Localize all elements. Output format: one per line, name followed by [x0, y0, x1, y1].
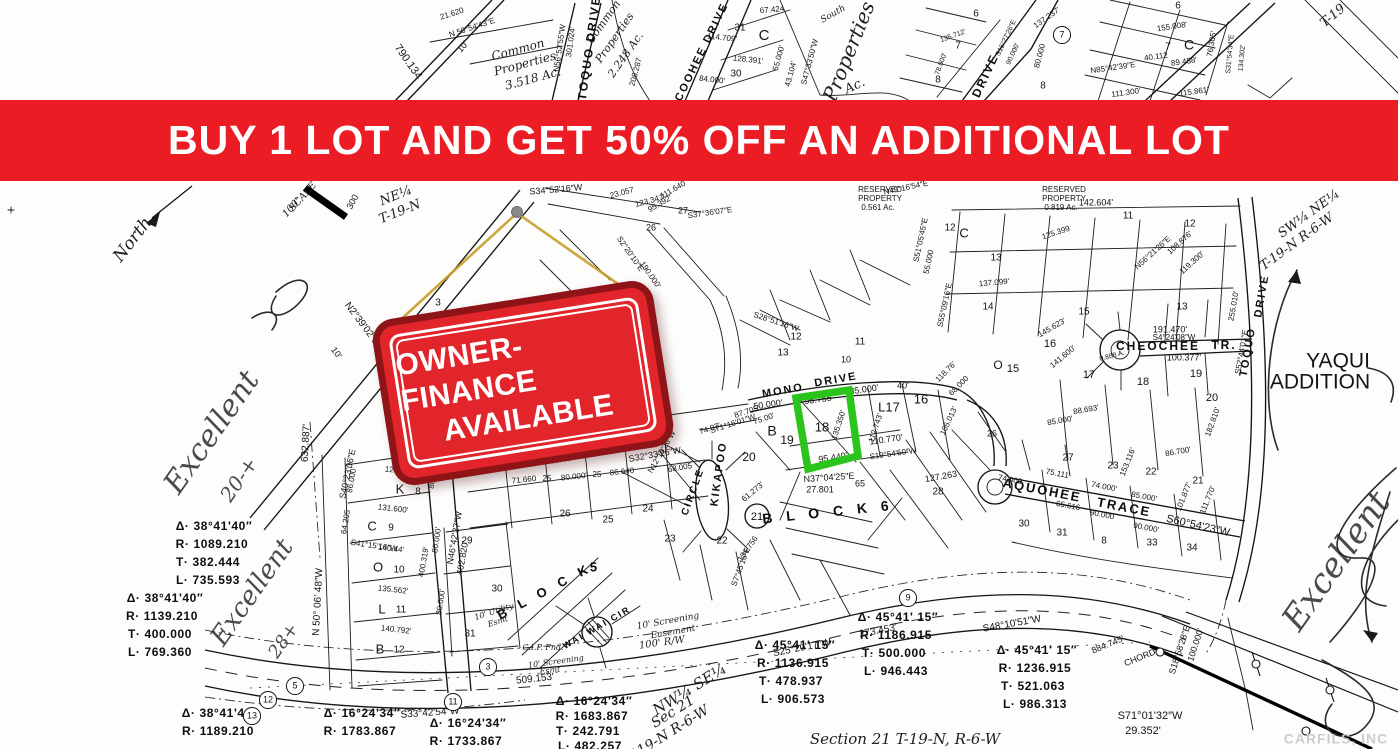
- map-label: 21.620: [439, 5, 466, 21]
- map-label: 5: [292, 680, 297, 690]
- map-label: O: [993, 358, 1002, 372]
- map-label: R· 1236.915: [999, 661, 1072, 675]
- map-label: 90.000': [1132, 521, 1160, 535]
- map-label: Δ· 45°41' 15″: [858, 610, 939, 624]
- map-label: N85°42'39″E: [1090, 60, 1136, 75]
- map-label: B L O C K 6: [762, 497, 895, 527]
- map-label: Δ· 16°24'34″: [430, 716, 507, 730]
- map-label: S48°10'51″W: [982, 614, 1042, 635]
- map-label: S47°33'50″W: [799, 38, 820, 86]
- map-label: 884.745': [1090, 633, 1126, 655]
- map-label: 20: [1206, 392, 1218, 404]
- map-label: 6: [973, 9, 979, 20]
- map-label: K: [396, 481, 405, 496]
- map-label: S34°52'16″W: [529, 182, 583, 197]
- map-label: 100' R/W: [638, 634, 686, 651]
- map-label: Δ· 16°24'34″: [556, 694, 633, 708]
- map-label: 208.287: [628, 56, 644, 87]
- map-label: 43.104': [783, 60, 799, 88]
- map-label: 64.205: [339, 509, 352, 535]
- map-label: L· 906.573: [761, 692, 825, 706]
- map-label: WAI WAI CIR: [561, 604, 632, 651]
- map-label: L: [378, 601, 385, 616]
- map-label: 18: [1137, 376, 1149, 388]
- map-label: 26: [987, 428, 997, 438]
- map-label: T· 478.937: [759, 674, 823, 688]
- map-label: 68.005: [667, 461, 693, 474]
- map-label: TR.: [1211, 338, 1236, 352]
- map-label: 27: [1062, 453, 1074, 464]
- map-label: C: [759, 27, 770, 44]
- pin-dot: [512, 207, 523, 218]
- map-label: 23: [1107, 461, 1119, 472]
- map-label: 127.263: [924, 469, 958, 484]
- map-label: 23.057: [609, 185, 635, 200]
- map-label: 30: [730, 69, 742, 80]
- map-label: 33: [1146, 538, 1158, 549]
- map-label: 11: [448, 696, 457, 706]
- map-label: 25: [593, 470, 602, 479]
- map-label: 5: [590, 559, 602, 574]
- map-label: R· 1136.915: [757, 656, 829, 670]
- map-label: 111.770': [1198, 484, 1217, 515]
- map-label: 11: [855, 337, 866, 348]
- map-label: 13: [1176, 302, 1188, 313]
- map-label: R· 1139.210: [126, 609, 198, 623]
- map-label: 40.112: [1143, 50, 1168, 62]
- map-label: CHORD: [1123, 646, 1158, 668]
- map-label: 28+: [264, 619, 304, 663]
- map-label: S7°45'16″E: [729, 546, 751, 587]
- map-label: T· 521.063: [1001, 679, 1065, 693]
- map-label: 134.302': [1238, 44, 1247, 71]
- map-label: 400.319': [417, 546, 431, 578]
- map-label: 182.810': [1203, 406, 1222, 438]
- map-label: 26: [646, 222, 656, 232]
- map-label: 22: [1145, 467, 1157, 478]
- map-label: 10: [841, 354, 851, 364]
- map-label: COOHEE DRIVE: [673, 1, 731, 104]
- map-label: 115.861': [1179, 85, 1210, 98]
- map-label: 85.000': [1046, 414, 1074, 427]
- map-label: 155.008': [1156, 20, 1188, 33]
- map-label: 0.819 Ac.: [1044, 203, 1077, 212]
- map-label: 3: [435, 298, 441, 309]
- map-label: S71°01'32″W: [1118, 710, 1183, 722]
- map-label: 632.887': [300, 424, 313, 463]
- map-label: L· 482.257: [558, 739, 622, 749]
- map-label: 30: [1018, 519, 1030, 530]
- map-label: 19: [780, 433, 794, 447]
- map-label: B L O C K: [494, 560, 594, 623]
- map-label: 80.000': [561, 471, 588, 483]
- map-label: 55.000: [922, 248, 936, 274]
- map-label: L· 946.443: [864, 664, 928, 678]
- map-label: 89.458': [1170, 55, 1197, 68]
- map-label: S41°15'16″W: [350, 538, 398, 554]
- map-label: R· 1683.867: [556, 709, 629, 723]
- map-label: L· 769.360: [128, 645, 192, 659]
- map-label: N56°21'26″E: [1133, 234, 1173, 271]
- map-label: 11: [396, 605, 407, 616]
- map-label: 137.237': [1032, 5, 1062, 30]
- map-label: 13: [247, 710, 257, 720]
- map-label: 12: [790, 332, 802, 343]
- map-label: South: [819, 3, 847, 25]
- map-label: 61.273': [740, 480, 766, 504]
- owner-finance-sign-face: OWNER-FINANCE AVAILABLE: [378, 286, 669, 480]
- map-label: 0.561 Ac.: [861, 203, 894, 212]
- map-label: CIRCLE: [680, 467, 707, 517]
- map-label: C: [959, 225, 968, 240]
- map-label: 11: [1123, 211, 1134, 222]
- map-label: 111.300': [1111, 86, 1142, 99]
- map-label: 20-+: [214, 452, 262, 507]
- map-label: 31: [1056, 528, 1068, 539]
- map-label: ADDITION: [1270, 371, 1370, 394]
- map-label: R· 1089.210: [176, 537, 249, 551]
- map-label: T-19: [1317, 1, 1348, 30]
- map-label: 10': [455, 39, 470, 55]
- map-label: 31: [734, 23, 746, 34]
- map-label: 29: [461, 536, 473, 547]
- map-label: 101.877': [1174, 481, 1194, 513]
- map-label: RESERVED: [1042, 185, 1086, 194]
- map-label: 16: [1044, 338, 1056, 350]
- map-label: N 50° 06' 48″W: [311, 567, 326, 636]
- map-label: C: [1184, 37, 1194, 53]
- map-label: 34: [1186, 543, 1198, 554]
- listing-image: 790.134N 50°54'43″E21.62010'CommonProper…: [0, 0, 1398, 749]
- map-label: 6: [1175, 1, 1181, 12]
- map-label: Δ· 38°41'40″: [127, 591, 204, 605]
- map-label: DRIVE: [1252, 273, 1271, 318]
- promo-banner: BUY 1 LOT AND GET 50% OFF AN ADDITIONAL …: [0, 100, 1398, 181]
- map-label: 88.693': [1072, 403, 1100, 416]
- map-label: 10': [329, 345, 344, 361]
- map-label: 40': [897, 380, 909, 390]
- map-label: 13: [990, 253, 1002, 264]
- promo-banner-text: BUY 1 LOT AND GET 50% OFF AN ADDITIONAL …: [168, 117, 1230, 164]
- map-label: 145.623': [1036, 316, 1067, 339]
- map-label: Section 21 T-19-N, R-6-W: [810, 730, 1002, 748]
- map-label: N49°16'54″E: [883, 178, 929, 196]
- map-label: 19: [1190, 368, 1202, 380]
- map-label: 0.888 A.: [1099, 350, 1126, 363]
- map-label: YAQUI: [1306, 350, 1370, 373]
- map-label: 74.07': [698, 421, 722, 436]
- map-label: S19°54'50″W: [869, 446, 917, 462]
- map-label: 78.000': [934, 52, 948, 76]
- map-label: 8: [1040, 81, 1046, 92]
- map-label: 67.424: [759, 4, 785, 15]
- map-label: 18: [815, 419, 829, 434]
- map-label: CARFILS, INC: [1284, 731, 1389, 747]
- map-label: 255.010': [1227, 290, 1241, 322]
- map-label: 300: [345, 193, 361, 211]
- map-label: 8: [1101, 536, 1107, 547]
- map-label: 80.000: [1032, 42, 1047, 68]
- map-label: 25: [602, 515, 614, 526]
- map-label: 10: [393, 565, 405, 576]
- map-label: 153.116': [1118, 446, 1138, 477]
- map-label: Δ· 38°41'40″: [176, 519, 253, 533]
- map-label: N 50°54'43″E: [448, 16, 496, 39]
- map-label: 125.399: [1041, 224, 1072, 242]
- map-label: PROPERTY: [1042, 194, 1087, 203]
- map-label: 21: [1192, 476, 1204, 487]
- map-label: Δ· 16°24'34″: [324, 706, 401, 720]
- map-label: R· 1783.867: [324, 724, 397, 738]
- map-label: R· 1733.867: [430, 734, 503, 748]
- map-label: 80.000': [434, 588, 447, 615]
- map-label: 7: [1059, 29, 1064, 39]
- map-label: 30: [491, 584, 503, 595]
- map-label: 131.600': [377, 503, 409, 515]
- map-label: 25: [543, 474, 552, 483]
- map-label: DRIVE: [969, 52, 1001, 100]
- map-label: Δ· 45°41' 15″: [997, 643, 1078, 657]
- map-label: 74.000': [1090, 480, 1118, 494]
- map-label: 135.350': [830, 409, 848, 441]
- map-label: 84.000': [699, 74, 726, 86]
- map-label: Excellent: [1273, 483, 1398, 639]
- map-label: 75.111': [1045, 467, 1072, 481]
- map-label: 135.562': [377, 584, 409, 596]
- map-label: 86.700': [1164, 445, 1192, 458]
- map-label: 9: [388, 523, 394, 534]
- map-label: 26: [559, 509, 571, 520]
- map-label: 790.134: [392, 42, 425, 81]
- map-label: 68.000: [947, 374, 971, 398]
- map-label: T· 400.000: [128, 627, 192, 641]
- map-label: N37°04'25″E: [803, 471, 855, 485]
- map-label: 22: [716, 536, 728, 547]
- map-label: 12: [944, 223, 956, 234]
- map-label: 12: [393, 645, 405, 656]
- map-label: C.I.P. Fnd.: [522, 643, 563, 652]
- map-label: PROPERTY: [858, 194, 903, 203]
- map-label: 118.76': [934, 359, 959, 384]
- map-label: 15: [1078, 307, 1090, 318]
- map-label: B: [767, 423, 776, 439]
- map-label: 15: [1007, 363, 1019, 375]
- map-label: L· 735.593: [176, 573, 240, 587]
- map-label: C: [367, 518, 376, 533]
- map-label: T· 242.791: [556, 724, 620, 738]
- map-label: L17: [878, 399, 900, 414]
- map-label: 100.377': [1167, 352, 1202, 362]
- map-label: 29.352': [1125, 725, 1161, 737]
- map-label: L· 986.313: [1003, 697, 1067, 711]
- map-label: 55.000': [771, 44, 787, 72]
- map-label: 27.801: [806, 484, 834, 494]
- map-label: 137.099': [978, 277, 1010, 289]
- map-label: 12: [1184, 219, 1196, 230]
- map-label: 23: [664, 534, 676, 545]
- map-label: 14: [982, 302, 994, 313]
- map-label: T· 382.444: [176, 555, 240, 569]
- map-label: 7: [955, 41, 961, 52]
- map-label: O: [373, 559, 383, 574]
- map-label: 3: [485, 661, 490, 671]
- map-label: B: [376, 641, 385, 656]
- map-label: S37°36'07″E: [687, 205, 733, 220]
- map-label: 16: [914, 391, 928, 406]
- north-arrow-icon: [146, 186, 192, 227]
- map-label: 13: [777, 348, 789, 359]
- map-label: 9: [905, 592, 910, 602]
- map-label: 17: [1083, 369, 1095, 381]
- map-label: 86.640: [609, 466, 635, 478]
- map-label: R· 1189.210: [182, 724, 254, 738]
- map-label: North: [108, 213, 156, 266]
- map-label: S31°54'34″E: [1224, 34, 1235, 74]
- map-label: 128.391': [732, 54, 764, 66]
- map-label: S4°24'08″W: [1153, 333, 1196, 342]
- map-label: 24: [642, 504, 654, 515]
- map-label: T· 500.000: [862, 646, 926, 660]
- map-label: 28: [932, 487, 944, 498]
- map-label: 76.305': [1205, 30, 1218, 58]
- map-label: 31: [464, 629, 476, 640]
- map-label: 140.792': [380, 624, 412, 636]
- owner-finance-sign-border: OWNER-FINANCE AVAILABLE: [388, 296, 658, 470]
- map-label: 20: [742, 450, 756, 464]
- map-label: 65: [855, 478, 865, 488]
- map-label: 8: [415, 487, 421, 498]
- map-label: 12: [263, 694, 273, 704]
